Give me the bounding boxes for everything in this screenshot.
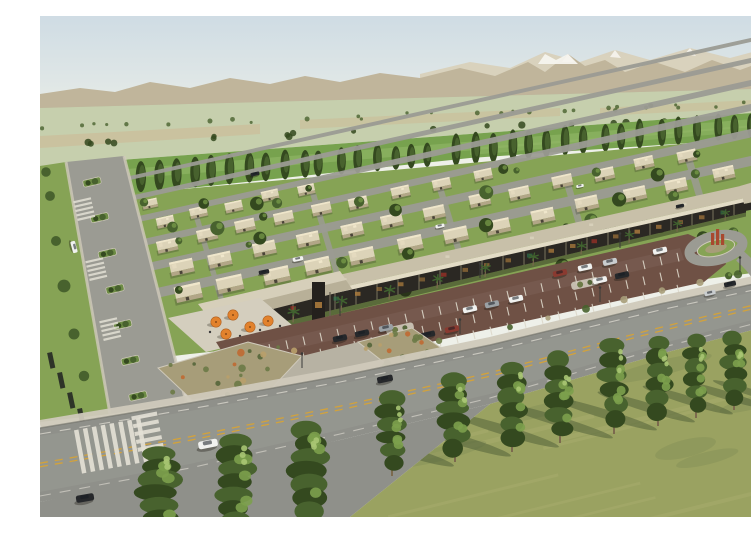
- scene-canvas: [40, 16, 751, 517]
- aerial-render: Aerial rendering of a master-planned des…: [40, 16, 751, 517]
